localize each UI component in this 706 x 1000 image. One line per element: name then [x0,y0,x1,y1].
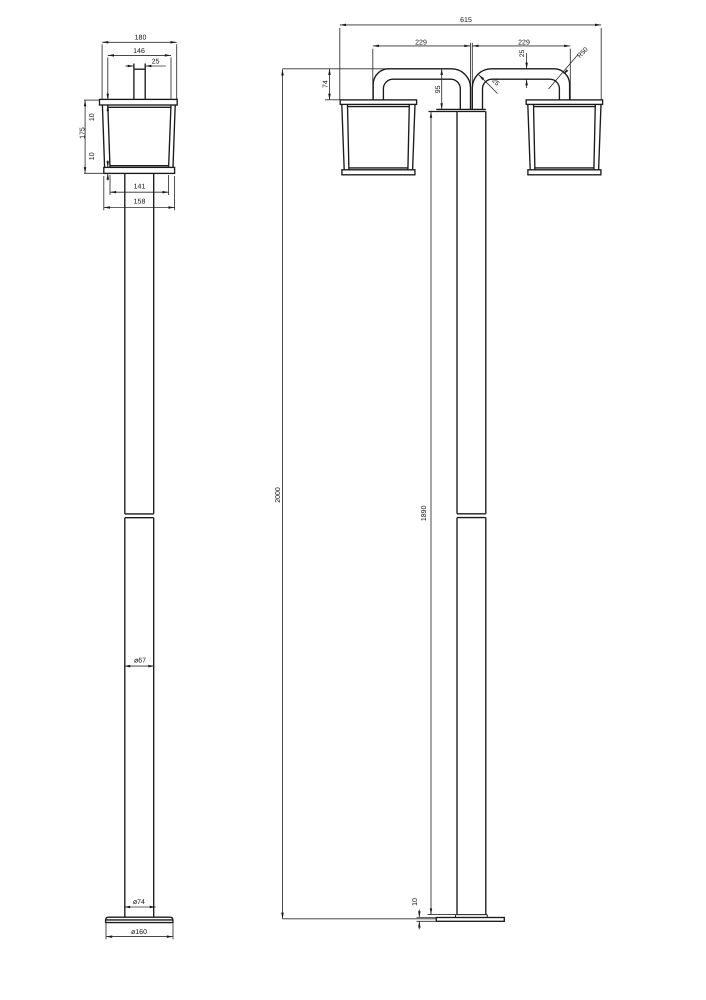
svg-text:25: 25 [152,58,160,65]
svg-text:R50: R50 [576,46,590,60]
svg-text:146: 146 [133,48,145,55]
svg-text:1890: 1890 [421,505,428,521]
svg-text:10: 10 [89,152,96,160]
svg-text:95: 95 [435,85,442,93]
svg-text:74: 74 [322,80,329,88]
svg-text:ø67: ø67 [134,658,146,665]
svg-text:229: 229 [415,40,427,47]
svg-text:25: 25 [519,50,526,58]
svg-text:10: 10 [89,113,96,121]
svg-text:175: 175 [79,127,86,139]
svg-text:2000: 2000 [275,487,282,503]
svg-text:ø74: ø74 [133,899,145,906]
svg-text:ø160: ø160 [131,929,147,936]
svg-text:229: 229 [518,40,530,47]
svg-text:615: 615 [460,17,472,24]
svg-text:158: 158 [134,199,146,206]
svg-text:180: 180 [135,34,147,41]
svg-text:141: 141 [134,184,146,191]
svg-text:10: 10 [412,898,419,906]
